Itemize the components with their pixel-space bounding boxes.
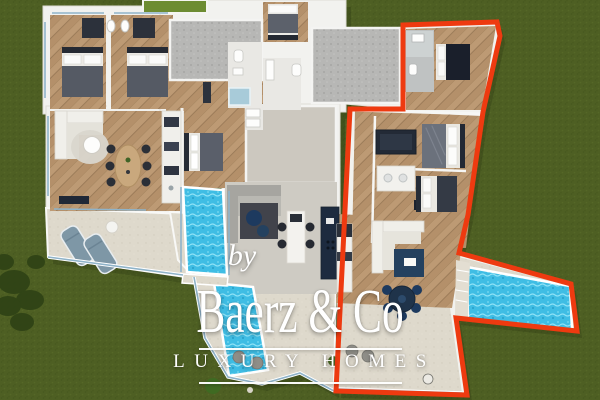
bed <box>416 176 457 212</box>
bed <box>268 4 298 40</box>
coffee-table <box>84 137 101 154</box>
lawn-patch <box>143 0 207 13</box>
wardrobe <box>82 18 104 38</box>
wardrobe <box>133 18 155 38</box>
lounge-sofa <box>227 185 281 243</box>
bed <box>127 47 168 97</box>
tv-cabinet <box>59 196 89 204</box>
bed <box>436 44 470 80</box>
bed <box>184 133 223 171</box>
pool-steps <box>455 260 470 318</box>
watermark-tagline: LUXURY HOMES <box>100 352 500 371</box>
master-bed <box>422 124 465 168</box>
watermark-rule-top <box>199 348 402 350</box>
vanity <box>377 166 415 191</box>
tv-unit <box>376 130 416 154</box>
kitchen-island <box>321 207 339 279</box>
watermark-by: by <box>212 241 272 271</box>
dining-table <box>106 145 152 188</box>
watermark-brand: Baerz & Co <box>160 281 440 343</box>
bed <box>62 47 103 97</box>
shower <box>229 88 250 105</box>
right-corner-sofa <box>372 221 424 277</box>
kitchen-counter <box>162 111 181 203</box>
watermark-rule-bottom <box>199 382 402 384</box>
hall-cabinet <box>203 82 211 103</box>
floorplan-screenshot: by Baerz & Co LUXURY HOMES <box>0 0 600 400</box>
patio-east <box>312 28 400 103</box>
